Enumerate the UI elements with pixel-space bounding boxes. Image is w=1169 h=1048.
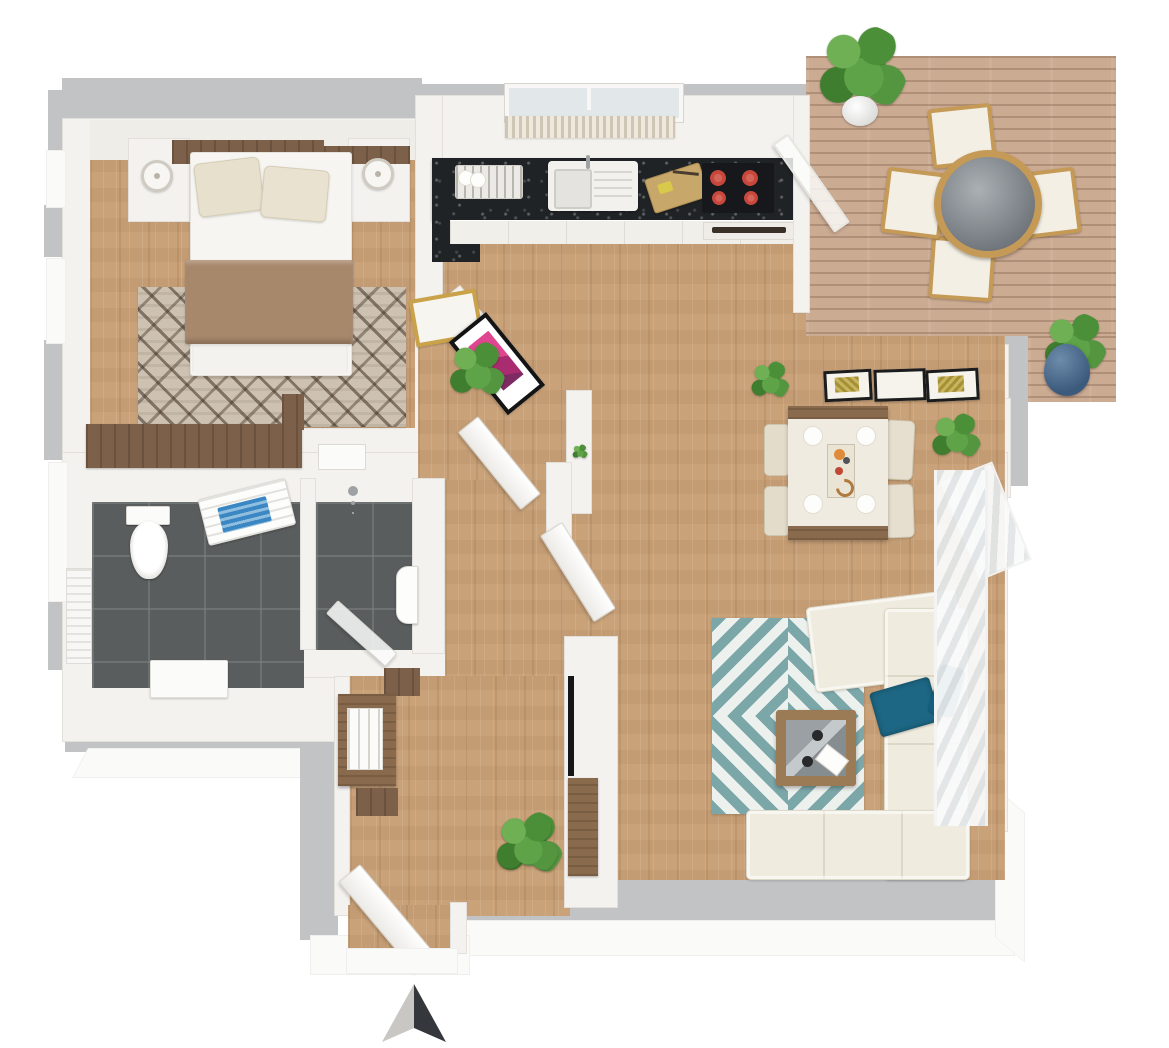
console-tray: [347, 708, 383, 770]
hall-wood-accent-top: [384, 668, 420, 696]
hall-console-table: [338, 694, 396, 786]
floorplan-canvas: [0, 0, 1169, 1048]
hall-wood-runner: [356, 788, 398, 816]
entry-threshold: [346, 948, 458, 974]
north-arrow-svg: [380, 984, 448, 1042]
hall-plant: [494, 812, 560, 878]
entry-right-jamb: [450, 902, 467, 954]
room-hall: [0, 0, 1169, 1048]
north-arrow-icon: [380, 984, 448, 1042]
